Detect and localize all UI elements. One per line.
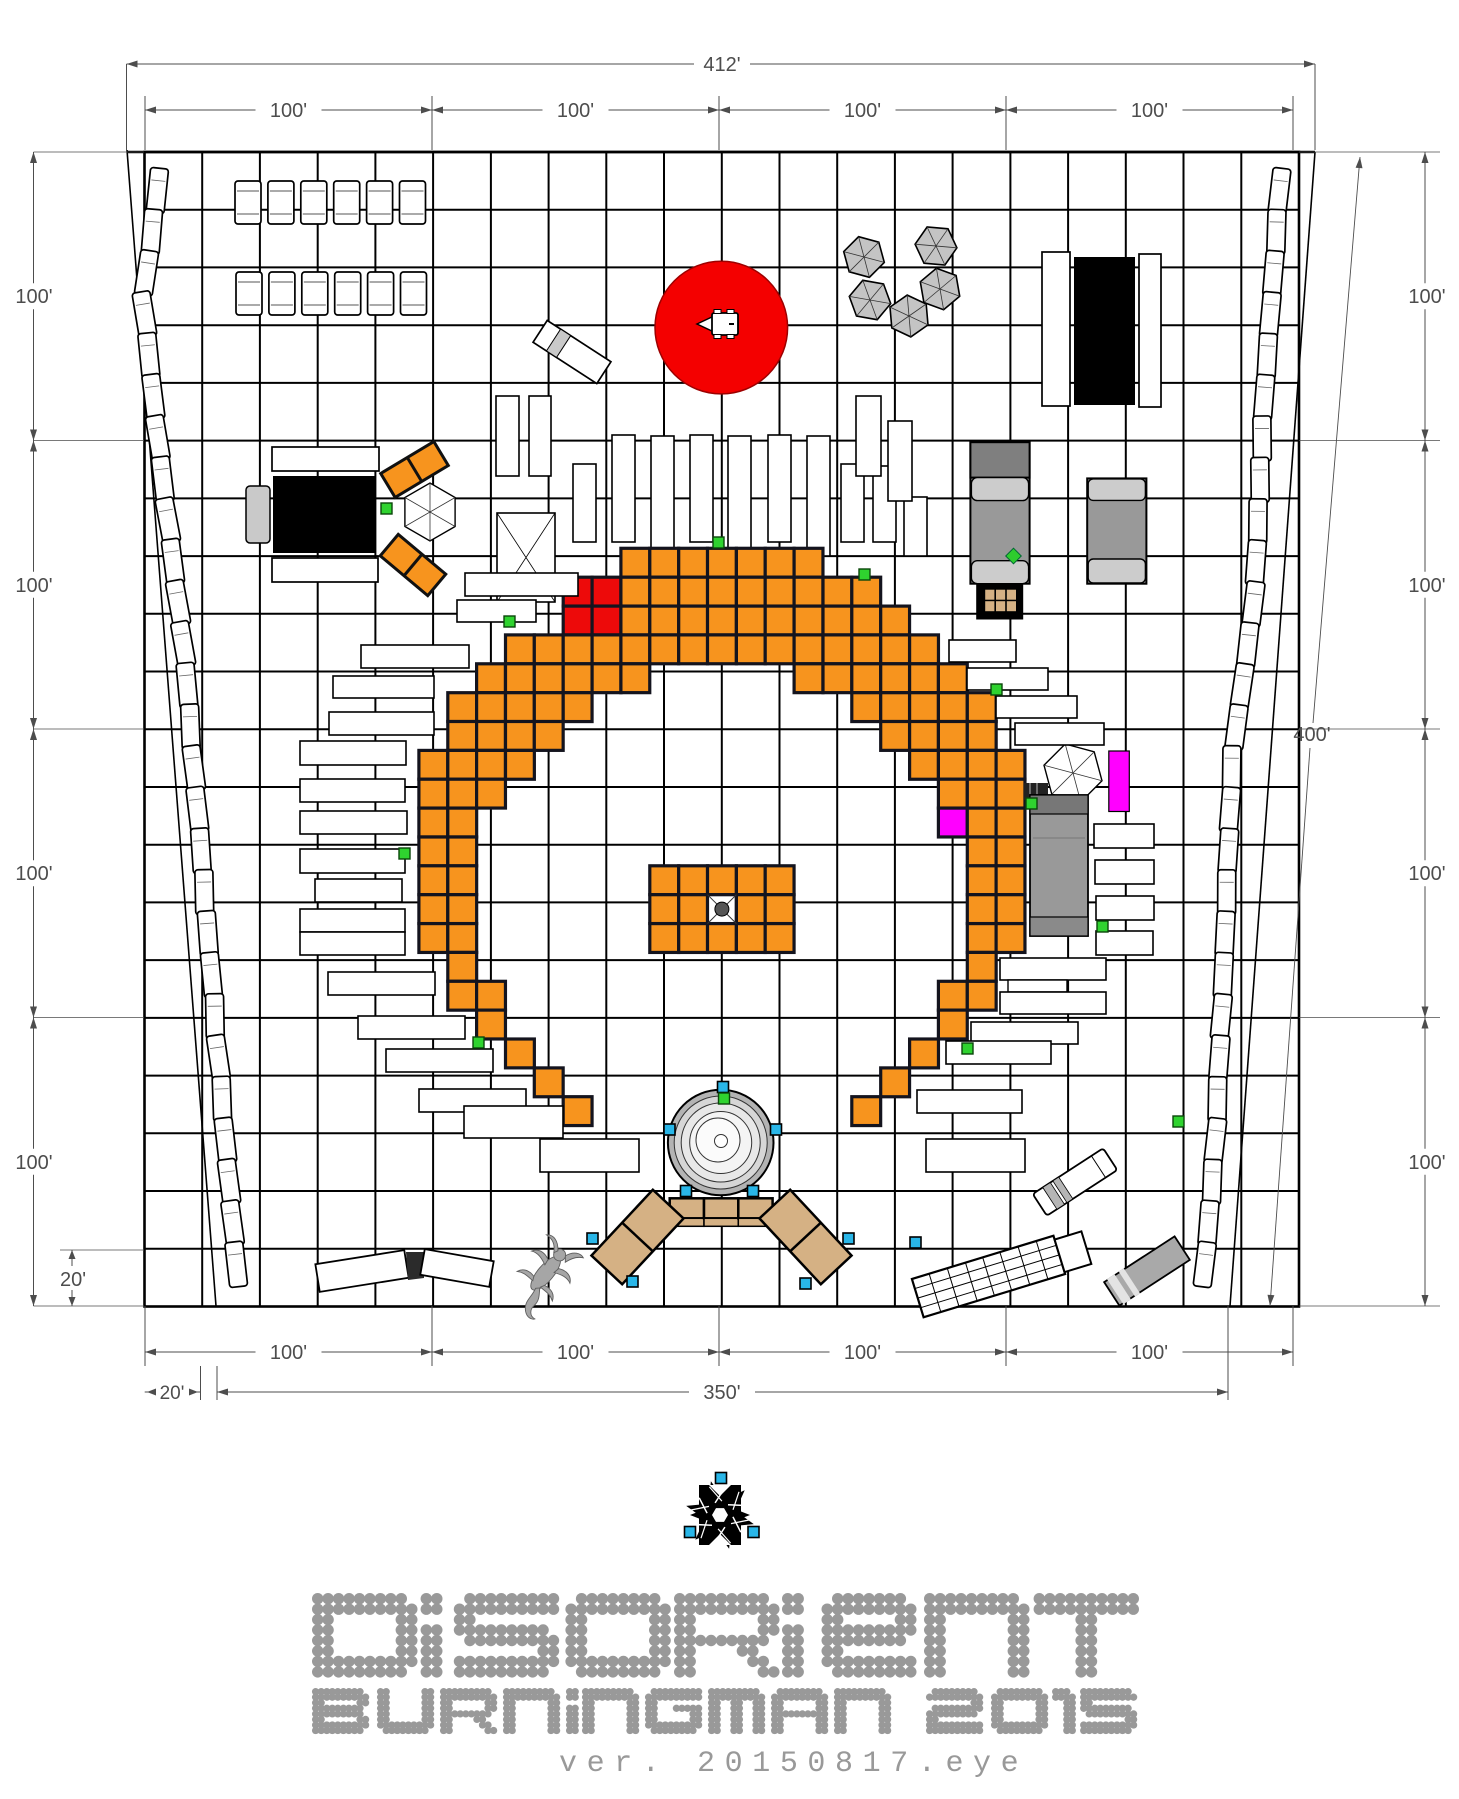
svg-text:100': 100' [844,100,881,122]
svg-text:100': 100' [1408,286,1445,308]
svg-text:100': 100' [15,1152,52,1174]
svg-text:100': 100' [15,286,52,308]
svg-text:20': 20' [160,1383,185,1404]
svg-text:412': 412' [703,54,740,76]
svg-text:100': 100' [1131,1342,1168,1364]
svg-text:100': 100' [1408,863,1445,885]
svg-text:100': 100' [15,863,52,885]
svg-text:100': 100' [1408,1152,1445,1174]
svg-text:20': 20' [60,1269,86,1291]
svg-text:100': 100' [1131,100,1168,122]
svg-text:100': 100' [557,1342,594,1364]
svg-text:ver. 20150817.eye: ver. 20150817.eye [559,1747,1028,1781]
svg-text:400': 400' [1293,724,1330,746]
svg-text:100': 100' [1408,575,1445,597]
svg-text:100': 100' [270,1342,307,1364]
svg-text:350': 350' [703,1382,740,1404]
svg-text:100': 100' [270,100,307,122]
svg-text:100': 100' [15,575,52,597]
svg-text:100': 100' [557,100,594,122]
svg-text:100': 100' [844,1342,881,1364]
